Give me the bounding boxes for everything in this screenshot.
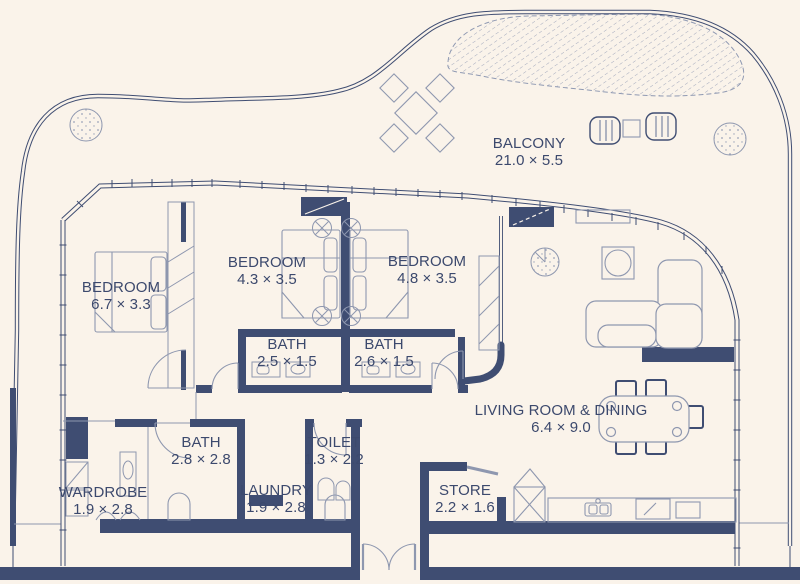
room-label-living-dining: LIVING ROOM & DINING 6.4 × 9.0 [475, 402, 648, 436]
room-name: BEDROOM [228, 254, 306, 271]
room-name: WARDROBE [59, 484, 148, 501]
outdoor-table-icon [380, 74, 454, 152]
room-dims: 2.8 × 2.8 [171, 451, 231, 468]
sofa-icon [586, 260, 702, 348]
room-label-laundry: LAUNDRY 1.9 × 2.8 [240, 482, 312, 516]
room-label-bedroom-1: BEDROOM 6.7 × 3.3 [82, 279, 160, 313]
kitchen-counter-icon [548, 498, 736, 522]
room-dims: 2.2 × 1.6 [435, 499, 495, 516]
room-dims: 6.7 × 3.3 [82, 296, 160, 313]
sink-icon [120, 362, 420, 496]
planting-hatch-area [448, 14, 744, 96]
washer-icon [318, 478, 350, 500]
room-dims: 1.3 × 2.2 [304, 451, 364, 468]
room-label-bath-2: BATH 2.6 × 1.5 [354, 336, 414, 370]
room-label-bedroom-2: BEDROOM 4.3 × 3.5 [228, 254, 306, 288]
room-label-wardrobe: WARDROBE 1.9 × 2.8 [59, 484, 148, 518]
floor-plan-canvas: BALCONY 21.0 × 5.5 BEDROOM 6.7 × 3.3 BED… [0, 0, 800, 584]
room-dims: 4.8 × 3.5 [388, 270, 466, 287]
room-dims: 1.9 × 2.8 [59, 501, 148, 518]
room-name: LIVING ROOM & DINING [475, 402, 648, 419]
room-label-balcony: BALCONY 21.0 × 5.5 [493, 135, 565, 169]
room-name: BATH [257, 336, 317, 353]
side-table-icon [576, 210, 634, 279]
room-name: LAUNDRY [240, 482, 312, 499]
room-name: BEDROOM [82, 279, 160, 296]
room-dims: 4.3 × 3.5 [228, 271, 306, 288]
sun-lounger-icon [590, 113, 676, 144]
room-dims: 2.5 × 1.5 [257, 353, 317, 370]
room-name: TOILET [304, 434, 364, 451]
room-label-store: STORE 2.2 × 1.6 [435, 482, 495, 516]
room-name: BALCONY [493, 135, 565, 152]
room-dims: 21.0 × 5.5 [493, 152, 565, 169]
room-label-bath-1: BATH 2.5 × 1.5 [257, 336, 317, 370]
fridge-icon [514, 469, 545, 522]
room-dims: 2.6 × 1.5 [354, 353, 414, 370]
room-dims: 1.9 × 2.8 [240, 499, 312, 516]
room-label-bedroom-3: BEDROOM 4.8 × 3.5 [388, 253, 466, 287]
room-name: BEDROOM [388, 253, 466, 270]
plant-icon [531, 248, 559, 276]
room-name: STORE [435, 482, 495, 499]
room-name: BATH [171, 434, 231, 451]
room-name: BATH [354, 336, 414, 353]
room-label-toilet: TOILET 1.3 × 2.2 [304, 434, 364, 468]
room-label-bath-3: BATH 2.8 × 2.8 [171, 434, 231, 468]
room-dims: 6.4 × 9.0 [475, 419, 648, 436]
